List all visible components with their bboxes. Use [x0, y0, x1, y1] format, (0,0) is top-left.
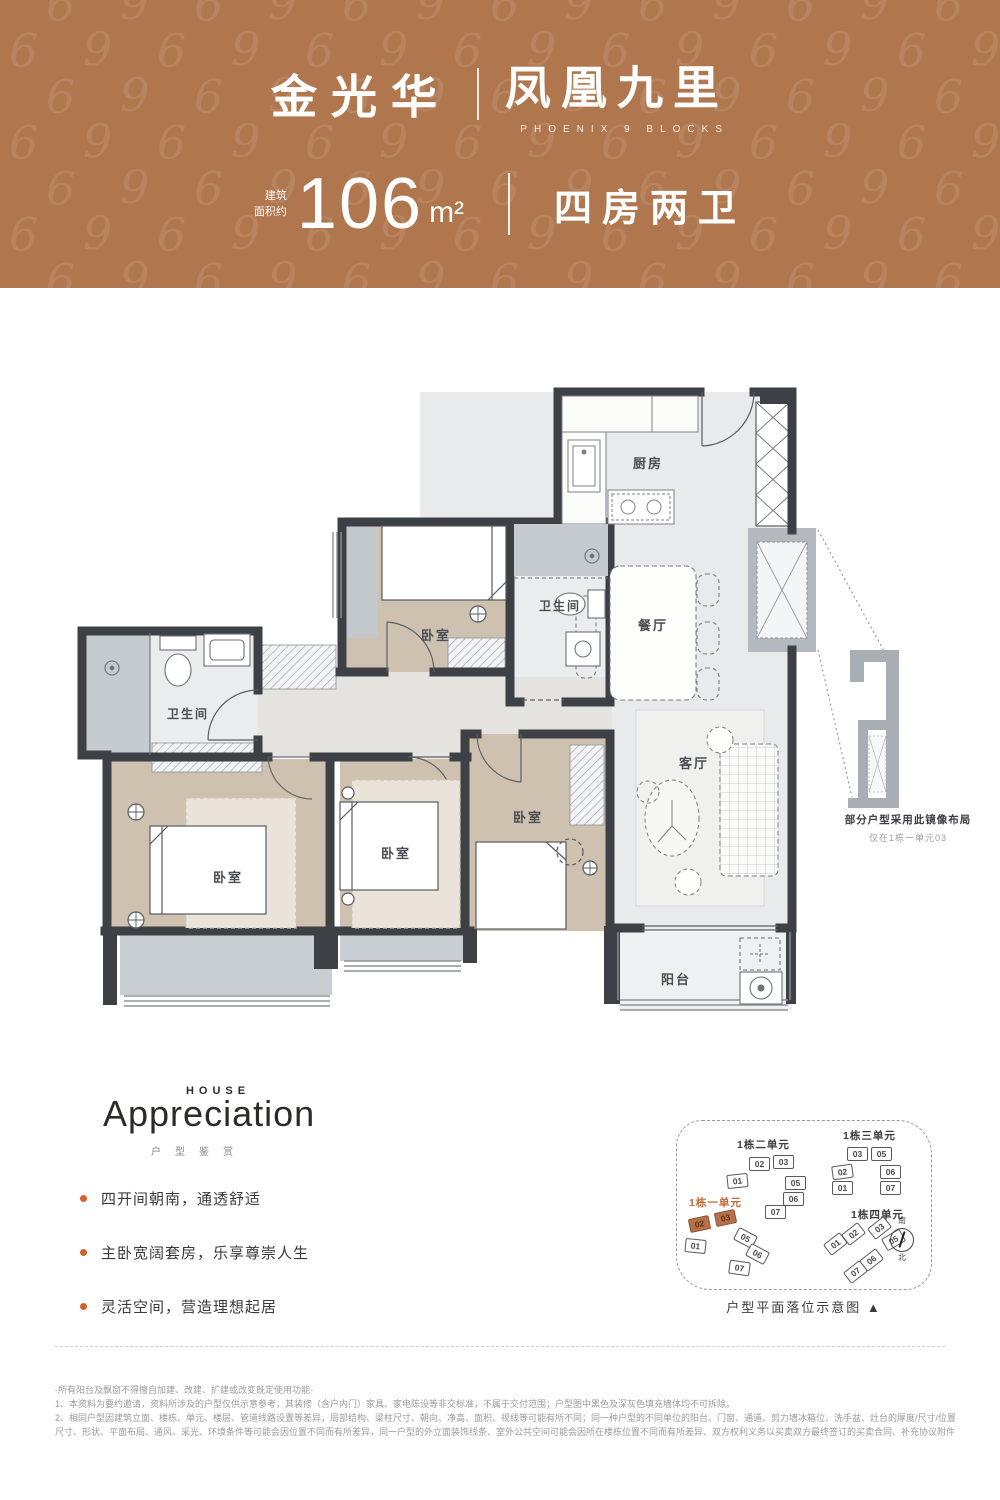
pattern-glyph: 9	[268, 256, 297, 288]
bullet-dot-icon	[80, 1303, 87, 1310]
appreciation-title: Appreciation	[103, 1093, 363, 1135]
compass-circle	[890, 1228, 914, 1252]
brand-logo: 金光华 凤凰九里 PHOENIX 9 BLOCKS	[0, 52, 1000, 135]
pattern-glyph: 9	[268, 0, 297, 26]
compass-north-label: 北	[887, 1254, 917, 1263]
label-bedroom-1: 卧室	[213, 870, 243, 885]
floor-plan: 厨房 餐厅 卫生间 卫生间 卧室 卧室 卧室 卧室 客厅 阳台	[55, 372, 980, 1037]
selling-point-text: 主卧宽阔套房，乐享尊崇人生	[101, 1242, 309, 1263]
pattern-glyph: 9	[416, 0, 445, 26]
pattern-glyph: 9	[0, 256, 1, 288]
siteplan-caption: 户型平面落位示意图 ▲	[676, 1297, 932, 1316]
pattern-glyph: 9	[490, 0, 519, 26]
unit-box: 01	[832, 1181, 853, 1195]
cluster-label: 1栋三单元	[843, 1128, 896, 1143]
unit-box: 06	[783, 1192, 804, 1206]
selling-point-text: 灵活空间，营造理想起居	[101, 1296, 277, 1317]
unit-box: 07	[728, 1260, 751, 1277]
pattern-glyph: 9	[638, 0, 667, 26]
area-value: 106	[297, 168, 423, 240]
label-kitchen: 厨房	[633, 456, 663, 471]
pattern-glyph: 9	[0, 0, 1, 26]
unit-box: 02	[749, 1157, 770, 1171]
disclaimer-line: 尺寸、形状、平面布局、通风、采光、环境条件等可能会因位置不同而有所差异，同一户型…	[55, 1426, 955, 1440]
pattern-glyph: 9	[934, 256, 963, 288]
label-bath-left: 卫生间	[167, 706, 209, 721]
siteplan-box: 1栋二单元0203010506071栋三单元0305020106071栋一单元0…	[676, 1120, 932, 1290]
mirror-diagram	[818, 530, 899, 808]
selling-point-2: 主卧宽阔套房，乐享尊崇人生	[80, 1242, 309, 1263]
selling-points: 四开间朝南，通透舒适 主卧宽阔套房，乐享尊崇人生 灵活空间，营造理想起居	[80, 1188, 309, 1350]
unit-box: 03	[714, 1209, 737, 1227]
label-living: 客厅	[679, 756, 709, 771]
unit-box: 05	[871, 1147, 892, 1161]
compass-icon: 南 北	[887, 1217, 917, 1263]
pattern-glyph: 9	[194, 0, 223, 26]
label-bath-top: 卫生间	[539, 598, 581, 613]
label-dining: 餐厅	[637, 618, 668, 633]
unit-box: 07	[765, 1205, 786, 1219]
brand-subtitle: PHOENIX 9 BLOCKS	[520, 124, 729, 135]
living-furniture	[636, 710, 778, 906]
brand-right-wrap: 凤凰九里 PHOENIX 9 BLOCKS	[505, 52, 729, 135]
pattern-glyph: 9	[416, 256, 445, 288]
pattern-glyph: 9	[638, 256, 667, 288]
pattern-glyph: 9	[342, 256, 371, 288]
label-bedroom-middle: 卧室	[513, 810, 543, 825]
layout-label: 四房两卫	[554, 177, 746, 232]
header-pattern: 9999999999999999999999999999999999999999…	[0, 0, 1000, 288]
area-prefix-line1: 建筑	[254, 188, 287, 205]
pattern-glyph: 9	[194, 256, 223, 288]
label-bedroom-master: 卧室	[381, 846, 411, 861]
pattern-glyph: 9	[786, 0, 815, 26]
siteplan-canvas: 1栋二单元0203010506071栋三单元0305020106071栋一单元0…	[677, 1121, 931, 1289]
area-unit: m²	[429, 196, 464, 230]
brand-name-left: 金光华	[271, 61, 451, 127]
pattern-glyph: 9	[120, 256, 149, 288]
pattern-glyph: 9	[46, 0, 75, 26]
selling-point-3: 灵活空间，营造理想起居	[80, 1296, 309, 1317]
area-prefix: 建筑 面积约	[254, 188, 287, 221]
area-row: 建筑 面积约 106 m² 四房两卫	[0, 168, 1000, 240]
selling-point-text: 四开间朝南，通透舒适	[101, 1188, 261, 1209]
disclaimer-line: 2、相同户型因建筑立面、楼栋、单元、楼层、管道线路设置等差异，局部结构、梁柱尺寸…	[55, 1412, 955, 1426]
selling-point-1: 四开间朝南，通透舒适	[80, 1188, 309, 1209]
unit-box: 02	[831, 1164, 854, 1181]
header-banner: 9999999999999999999999999999999999999999…	[0, 0, 1000, 288]
bullet-dot-icon	[80, 1195, 87, 1202]
mirror-note: 部分户型采用此镜像布局 仅在1栋一单元03	[833, 812, 983, 844]
appreciation-subtitle: 户型鉴赏	[151, 1143, 363, 1158]
compass-south-label: 南	[887, 1217, 917, 1226]
cluster-label: 1栋二单元	[737, 1137, 790, 1152]
area-divider	[508, 173, 510, 235]
pattern-glyph: 9	[934, 0, 963, 26]
pattern-glyph: 9	[860, 0, 889, 26]
unit-box: 07	[880, 1181, 901, 1195]
appreciation-heading: HOUSE Appreciation 户型鉴赏	[103, 1085, 363, 1158]
cluster-label: 1栋一单元	[689, 1195, 742, 1210]
disclaimer: -所有阳台及飘窗不得擅自加建、改建、扩建或改变既定使用功能- 1、本资料为要约邀…	[55, 1384, 955, 1440]
compass-needle	[898, 1231, 905, 1248]
footer-divider	[55, 1346, 945, 1347]
unit-box: 01	[726, 1173, 748, 1189]
pattern-glyph: 9	[712, 256, 741, 288]
pattern-glyph: 9	[860, 256, 889, 288]
unit-box: 03	[847, 1147, 868, 1161]
unit-box: 05	[785, 1176, 806, 1190]
pattern-glyph: 9	[564, 256, 593, 288]
area-prefix-line2: 面积约	[254, 204, 287, 221]
pattern-glyph: 9	[786, 256, 815, 288]
brand-name-right: 凤凰九里	[505, 52, 729, 118]
bullet-dot-icon	[80, 1249, 87, 1256]
unit-box: 06	[880, 1165, 901, 1179]
label-balcony: 阳台	[661, 972, 691, 987]
pattern-glyph: 9	[564, 0, 593, 26]
disclaimer-line: 1、本资料为要约邀请，资料所涉及的户型仅供示意参考，其装修（含户内门）家具、家电…	[55, 1398, 955, 1412]
pattern-glyph: 9	[120, 0, 149, 26]
unit-box: 01	[684, 1238, 706, 1254]
label-bedroom-top: 卧室	[421, 628, 451, 643]
disclaimer-line: -所有阳台及飘窗不得擅自加建、改建、扩建或改变既定使用功能-	[55, 1384, 955, 1398]
logo-divider	[477, 68, 479, 120]
pattern-glyph: 9	[712, 0, 741, 26]
mirror-note-sub: 仅在1栋一单元03	[833, 831, 983, 844]
unit-box: 03	[773, 1155, 794, 1169]
pattern-glyph: 9	[46, 256, 75, 288]
page: 9999999999999999999999999999999999999999…	[0, 0, 1000, 1500]
pattern-glyph: 9	[342, 0, 371, 26]
unit-box: 02	[688, 1215, 711, 1233]
pattern-glyph: 9	[490, 256, 519, 288]
mirror-note-title: 部分户型采用此镜像布局	[833, 812, 983, 827]
